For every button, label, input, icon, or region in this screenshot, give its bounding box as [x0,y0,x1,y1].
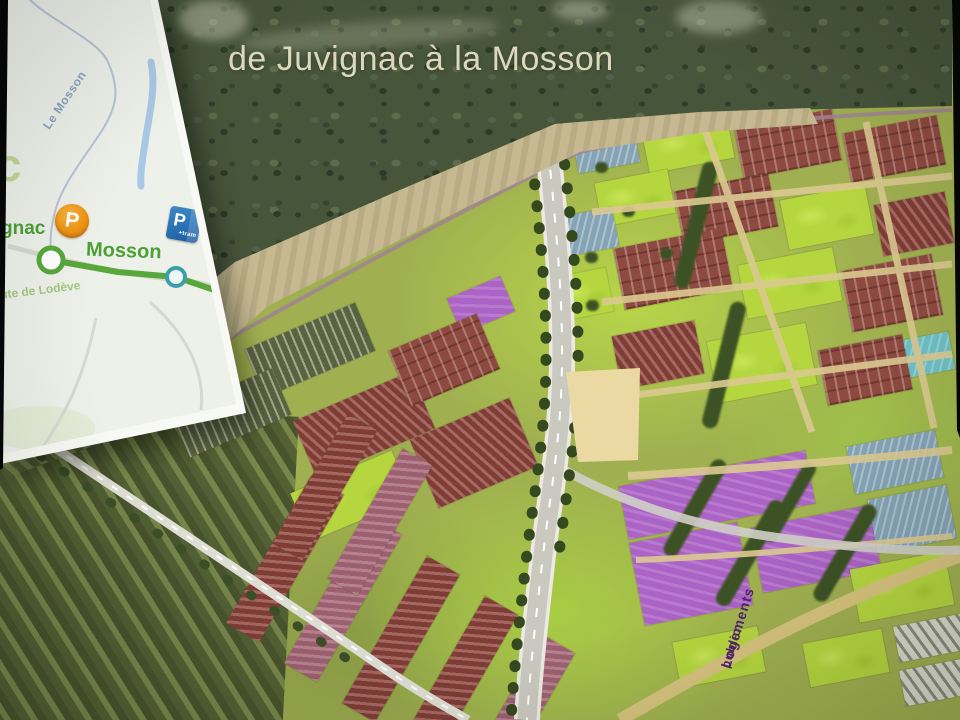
parking-letter: P [63,208,80,234]
map-background: c Le Mosson gnac Mosson Route de Lodève … [0,0,252,470]
central-road [511,126,578,720]
parking-letter: P [172,209,187,232]
dashed-road [40,446,468,720]
zone-label-line: Logements [715,585,760,671]
station-mosson [167,268,185,286]
map-card: c Le Mosson gnac Mosson Route de Lodève … [0,0,252,470]
station-juvignac [39,248,63,272]
video-frame: public Logements de Juvignac à la Mosson [0,0,960,720]
station-label-juvignac: gnac [1,218,45,240]
river-mosson [141,62,153,186]
inset-map: c Le Mosson gnac Mosson Route de Lodève … [0,0,260,480]
video-title: de Juvignac à la Mosson [228,40,614,79]
parking-tram-badge: P +tram [165,205,202,243]
map-road [150,302,202,410]
station-label-mosson: Mosson [86,239,162,265]
light-patch [676,0,761,34]
light-patch [553,0,608,20]
